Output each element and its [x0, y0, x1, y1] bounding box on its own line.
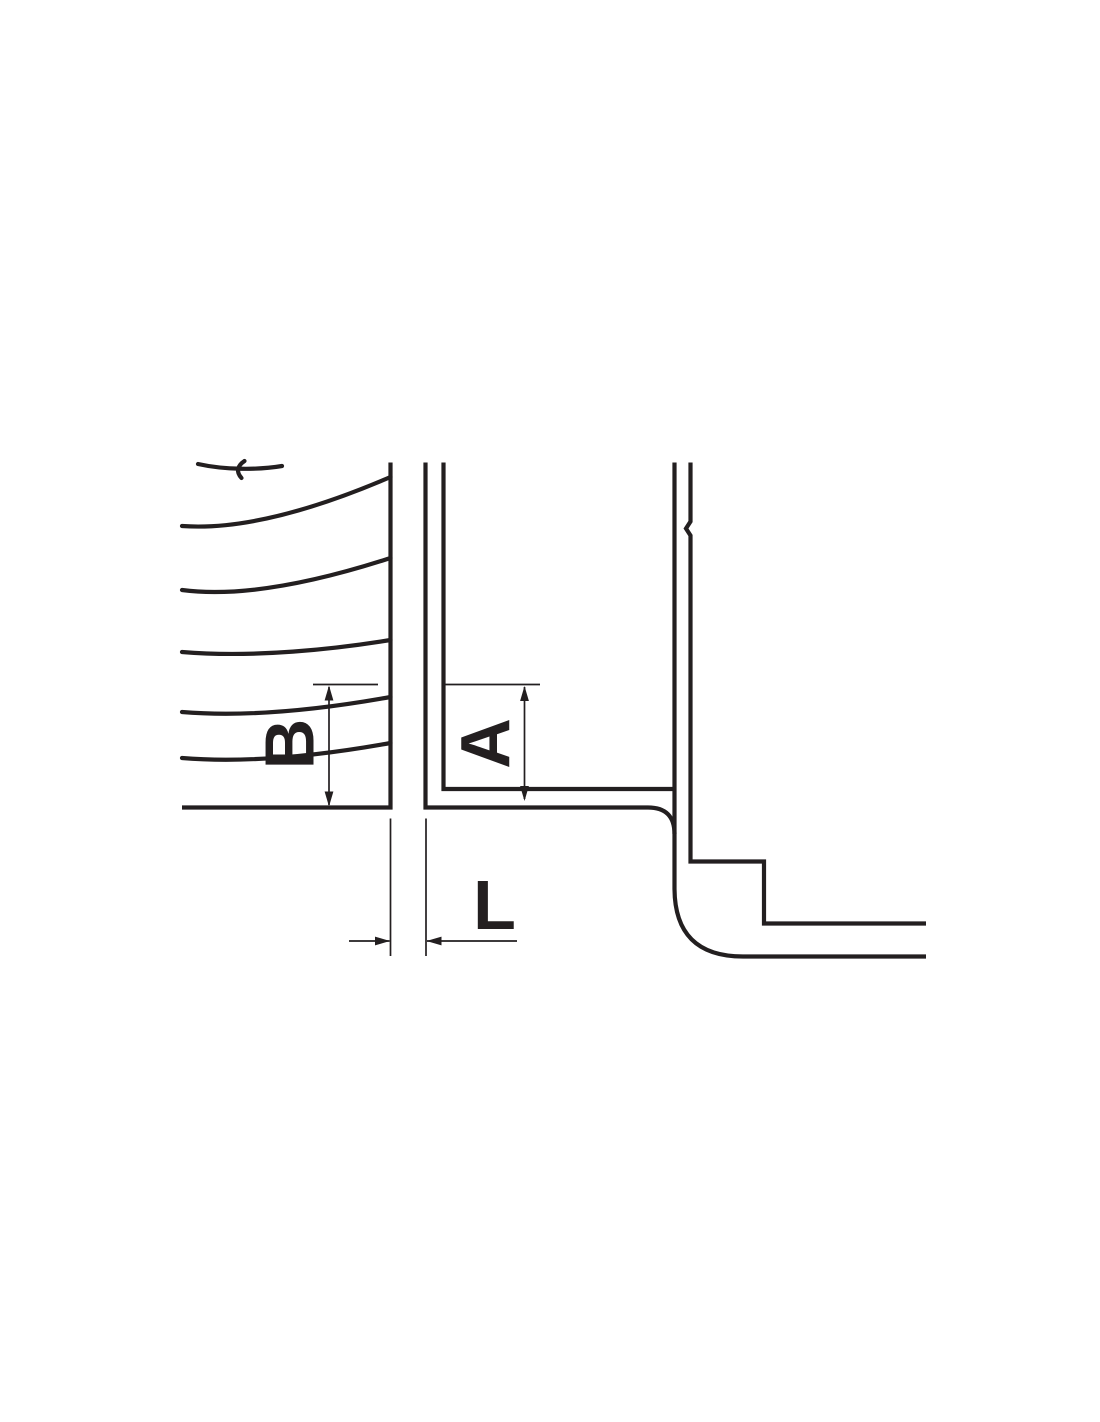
- grain-flow-lines: [182, 461, 391, 760]
- technical-drawing: B A L: [0, 0, 1100, 1422]
- dim-l-arrow-left-icon: [427, 937, 442, 946]
- grain-flow-line-4: [182, 640, 391, 654]
- tube-right-wall: [675, 463, 927, 957]
- grain-flow-line-2: [182, 477, 391, 527]
- dim-b-arrow-up-icon: [325, 686, 334, 701]
- dim-a-arrow-up-icon: [520, 686, 529, 701]
- grain-flow-line-3: [182, 558, 391, 592]
- dim-b-label: B: [251, 719, 329, 770]
- dim-b-arrow-down-icon: [325, 792, 334, 807]
- dim-l-label: L: [473, 866, 516, 944]
- dim-l-arrow-right-icon: [375, 937, 390, 946]
- grain-flow-line-5: [182, 697, 391, 714]
- tube-outer-wall: [426, 463, 675, 835]
- dim-a-arrow-down-icon: [520, 786, 529, 801]
- dim-a-label: A: [447, 718, 525, 769]
- right-component-step-profile: [686, 463, 926, 924]
- drawing-page: B A L: [0, 0, 1100, 1422]
